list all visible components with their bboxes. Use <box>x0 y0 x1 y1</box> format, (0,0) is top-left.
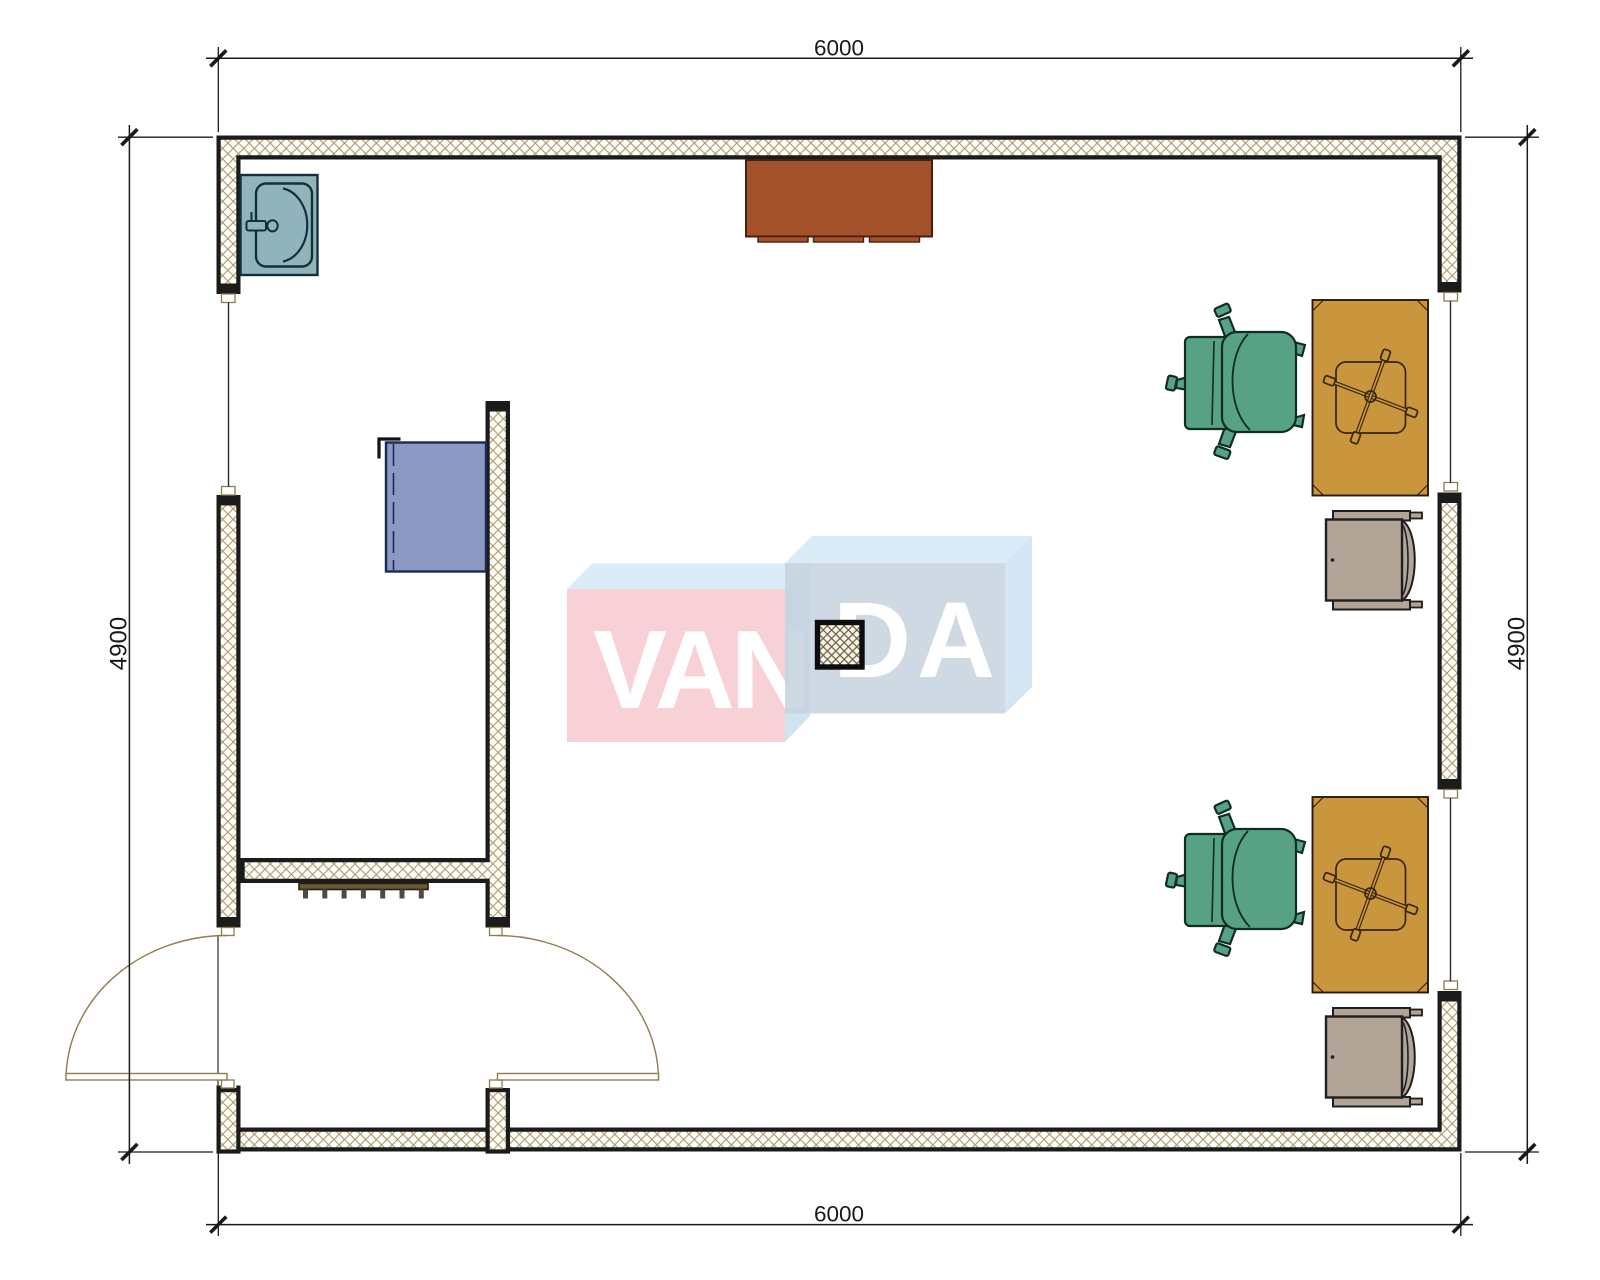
svg-text:VAN: VAN <box>593 608 807 732</box>
svg-text:6000: 6000 <box>814 36 864 61</box>
svg-text:6000: 6000 <box>814 1202 864 1227</box>
svg-text:4900: 4900 <box>106 617 133 670</box>
svg-text:4900: 4900 <box>1504 617 1531 670</box>
